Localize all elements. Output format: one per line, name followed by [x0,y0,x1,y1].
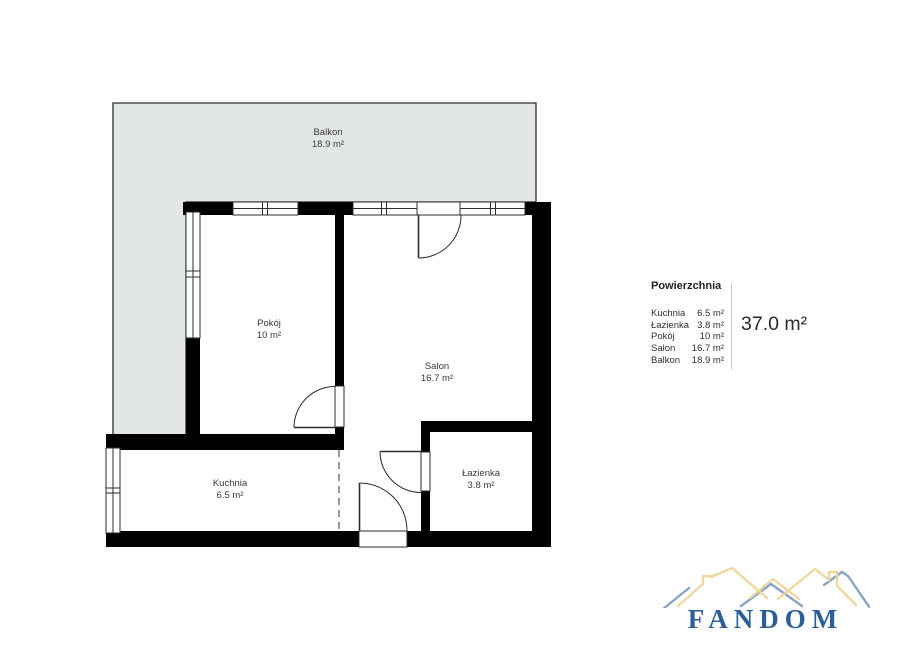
balcony-area [113,103,536,440]
room-label-pokoj: Pokój 10 m² [257,318,281,342]
room-name: Kuchnia [213,478,247,490]
wall-pokoj-kuchnia [113,434,344,450]
balcony-floor [113,103,536,440]
room-name: Pokój [257,318,281,330]
room-label-balkon: Balkon 18.9 m² [312,127,344,151]
area-legend: Powierzchnia Kuchnia 6.5 m² Łazienka 3.8… [651,280,724,367]
legend-label: Balkon [651,355,680,367]
logo-text: FANDOM [655,604,870,635]
room-area: 18.9 m² [312,139,344,151]
legend-value: 6.5 m² [697,308,724,320]
bathroom-door-arc [380,452,421,493]
legend-label: Salon [651,343,675,355]
wall-bathroom-left-lower [421,491,430,531]
room-area: 6.5 m² [213,490,247,502]
wall-top-middle [298,202,353,215]
legend-row-lazienka: Łazienka 3.8 m² [651,320,724,332]
legend-label: Pokój [651,331,675,343]
balcony-door-opening [417,202,460,215]
wall-divider-upper [335,215,344,386]
legend-row-kuchnia: Kuchnia 6.5 m² [651,308,724,320]
wall-left-lower [186,338,200,438]
room-area: 3.8 m² [462,480,500,492]
bathroom-door-opening [421,452,430,491]
legend-value: 18.9 m² [692,355,724,367]
room-area: 10 m² [257,330,281,342]
room-area: 16.7 m² [421,373,453,385]
legend-divider [731,284,732,369]
legend-header: Powierzchnia [651,280,724,292]
room-label-lazienka: Łazienka 3.8 m² [462,468,500,492]
legend-value: 10 m² [700,331,724,343]
roofline-icon [655,560,870,608]
wall-bottom-left [106,531,359,547]
wall-bottom-right [407,531,551,547]
legend-value: 16.7 m² [692,343,724,355]
room-name: Balkon [312,127,344,139]
roofline-blue [663,572,870,608]
legend-label: Łazienka [651,320,689,332]
pokoj-door-arc [294,387,335,428]
legend-row-balkon: Balkon 18.9 m² [651,355,724,367]
room-name: Łazienka [462,468,500,480]
entrance-door-threshold [359,531,407,547]
floorplan-canvas: Balkon 18.9 m² Pokój 10 m² Salon 16.7 m²… [0,0,900,658]
wall-left-upper [186,202,200,212]
legend-rows: Kuchnia 6.5 m² Łazienka 3.8 m² Pokój 10 … [651,308,724,367]
entrance-door-arc [360,483,408,531]
room-name: Salon [421,361,453,373]
legend-row-pokoj: Pokój 10 m² [651,331,724,343]
room-label-salon: Salon 16.7 m² [421,361,453,385]
legend-label: Kuchnia [651,308,685,320]
total-area: 37.0 m² [741,313,807,336]
wall-right [532,202,551,547]
legend-value: 3.8 m² [697,320,724,332]
wall-bathroom-top [421,421,533,432]
legend-row-salon: Salon 16.7 m² [651,343,724,355]
balcony-door-arc [419,216,462,259]
fandom-logo: FANDOM [655,560,870,635]
wall-kitchen-left-top [106,434,120,448]
room-label-kuchnia: Kuchnia 6.5 m² [213,478,247,502]
wall-bathroom-left-upper [421,421,430,452]
pokoj-door-opening [335,386,344,427]
